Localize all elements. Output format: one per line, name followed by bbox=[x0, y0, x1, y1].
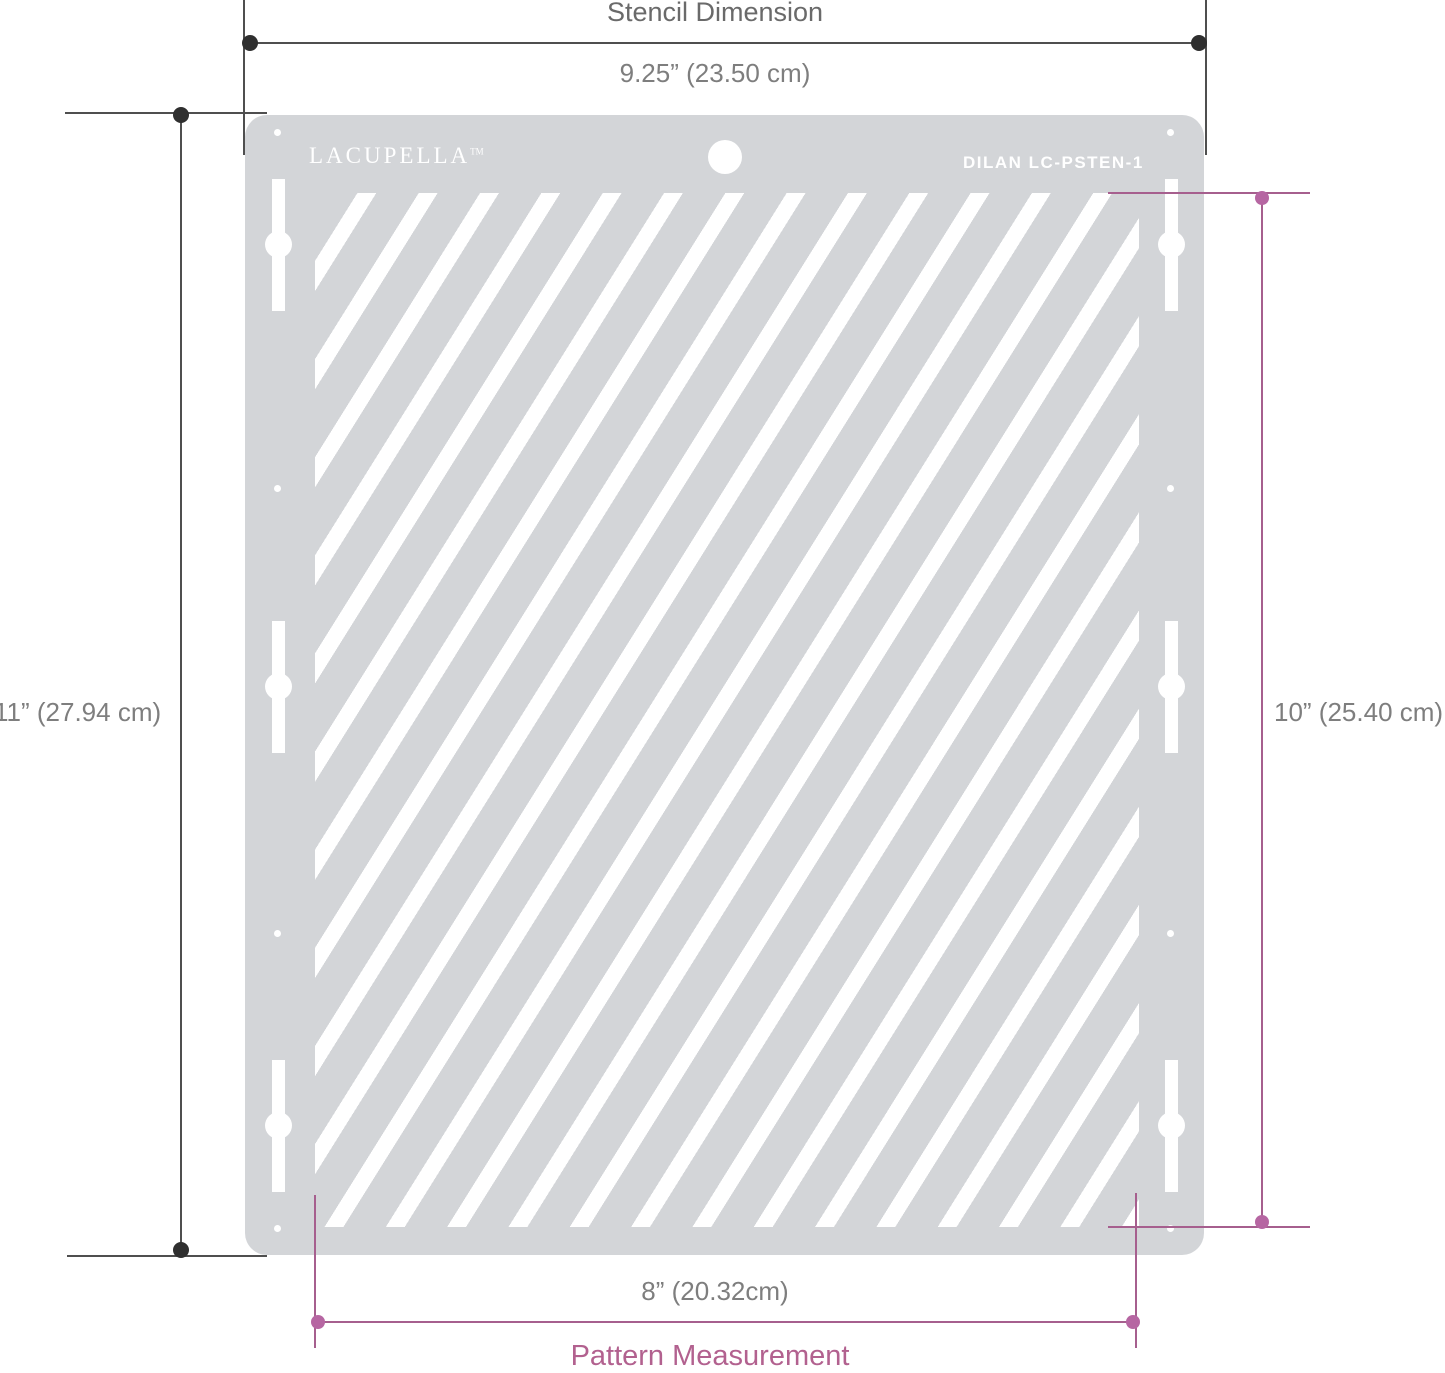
hanging-hole bbox=[708, 140, 742, 174]
alignment-dot bbox=[1167, 129, 1174, 136]
registration-mark bbox=[272, 179, 285, 311]
pattern-width-dimension-line bbox=[318, 1321, 1133, 1323]
registration-circle bbox=[1158, 673, 1185, 700]
stencil-sheet: LACUPELLATM DILAN LC-PSTEN-1 bbox=[245, 115, 1204, 1255]
pattern-measurement-title: Pattern Measurement bbox=[480, 1340, 940, 1373]
extension-line bbox=[243, 0, 245, 155]
dimension-endpoint bbox=[173, 1242, 189, 1258]
alignment-dot bbox=[1167, 930, 1174, 937]
pattern-height-value: 10” (25.40 cm) bbox=[1274, 697, 1445, 728]
pattern-extension-line bbox=[1108, 192, 1310, 194]
extension-line bbox=[1205, 0, 1207, 155]
brand-logo: LACUPELLATM bbox=[309, 143, 484, 169]
pattern-height-dimension-line bbox=[1261, 198, 1263, 1222]
pattern-extension-line bbox=[1108, 1226, 1310, 1228]
diagonal-stripe-pattern bbox=[315, 193, 1139, 1227]
stencil-dimension-diagram: LACUPELLATM DILAN LC-PSTEN-1 Stencil Dim… bbox=[0, 0, 1445, 1373]
brand-name: LACUPELLA bbox=[309, 143, 470, 168]
extension-line bbox=[65, 112, 267, 114]
stencil-width-value: 9.25” (23.50 cm) bbox=[495, 58, 935, 89]
pattern-dimension-endpoint bbox=[1255, 1215, 1269, 1229]
alignment-dot bbox=[274, 485, 281, 492]
stencil-height-value: 11” (27.94 cm) bbox=[0, 697, 174, 728]
registration-circle bbox=[265, 231, 292, 258]
alignment-dot bbox=[274, 129, 281, 136]
pattern-dimension-endpoint bbox=[1126, 1315, 1140, 1329]
product-code: DILAN LC-PSTEN-1 bbox=[963, 153, 1133, 173]
dimension-endpoint bbox=[1191, 35, 1207, 51]
pattern-dimension-endpoint bbox=[1255, 191, 1269, 205]
dimension-endpoint bbox=[173, 107, 189, 123]
registration-mark bbox=[1165, 179, 1178, 311]
registration-mark bbox=[1165, 621, 1178, 753]
alignment-dot bbox=[1167, 485, 1174, 492]
pattern-dimension-endpoint bbox=[311, 1315, 325, 1329]
registration-circle bbox=[1158, 231, 1185, 258]
dimension-endpoint bbox=[242, 35, 258, 51]
trademark-symbol: TM bbox=[470, 146, 484, 156]
registration-mark bbox=[272, 621, 285, 753]
width-dimension-line bbox=[250, 42, 1199, 44]
alignment-dot bbox=[274, 930, 281, 937]
registration-circle bbox=[265, 673, 292, 700]
alignment-dot bbox=[274, 1225, 281, 1232]
registration-circle bbox=[1158, 1112, 1185, 1139]
extension-line bbox=[67, 1255, 267, 1257]
height-dimension-line bbox=[180, 115, 182, 1250]
registration-mark bbox=[1165, 1060, 1178, 1192]
stencil-dimension-title: Stencil Dimension bbox=[495, 0, 935, 28]
registration-mark bbox=[272, 1060, 285, 1192]
pattern-width-value: 8” (20.32cm) bbox=[495, 1276, 935, 1307]
registration-circle bbox=[265, 1112, 292, 1139]
